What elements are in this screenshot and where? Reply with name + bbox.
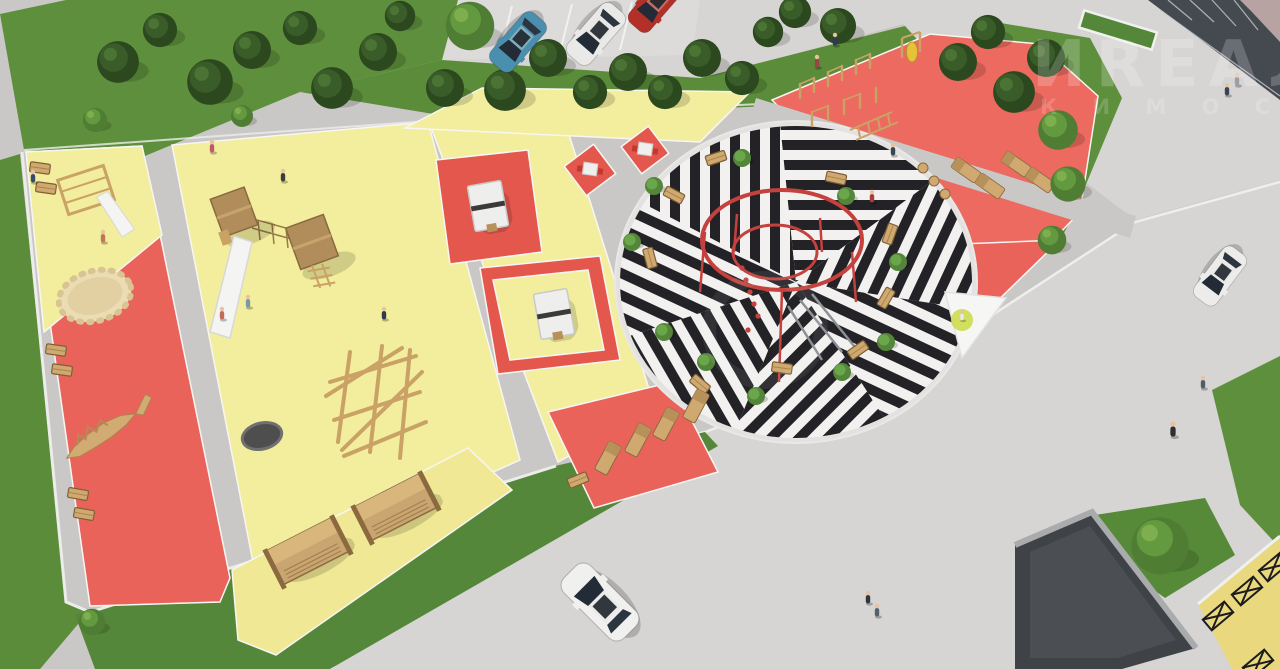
courtyard-render: ИREAЛ К И М О С К — [0, 0, 1280, 669]
punching-bag — [907, 42, 918, 62]
watermark-line1: ИREAЛ — [1032, 28, 1280, 102]
watermark-line2: К И М О С К — [1040, 95, 1280, 119]
